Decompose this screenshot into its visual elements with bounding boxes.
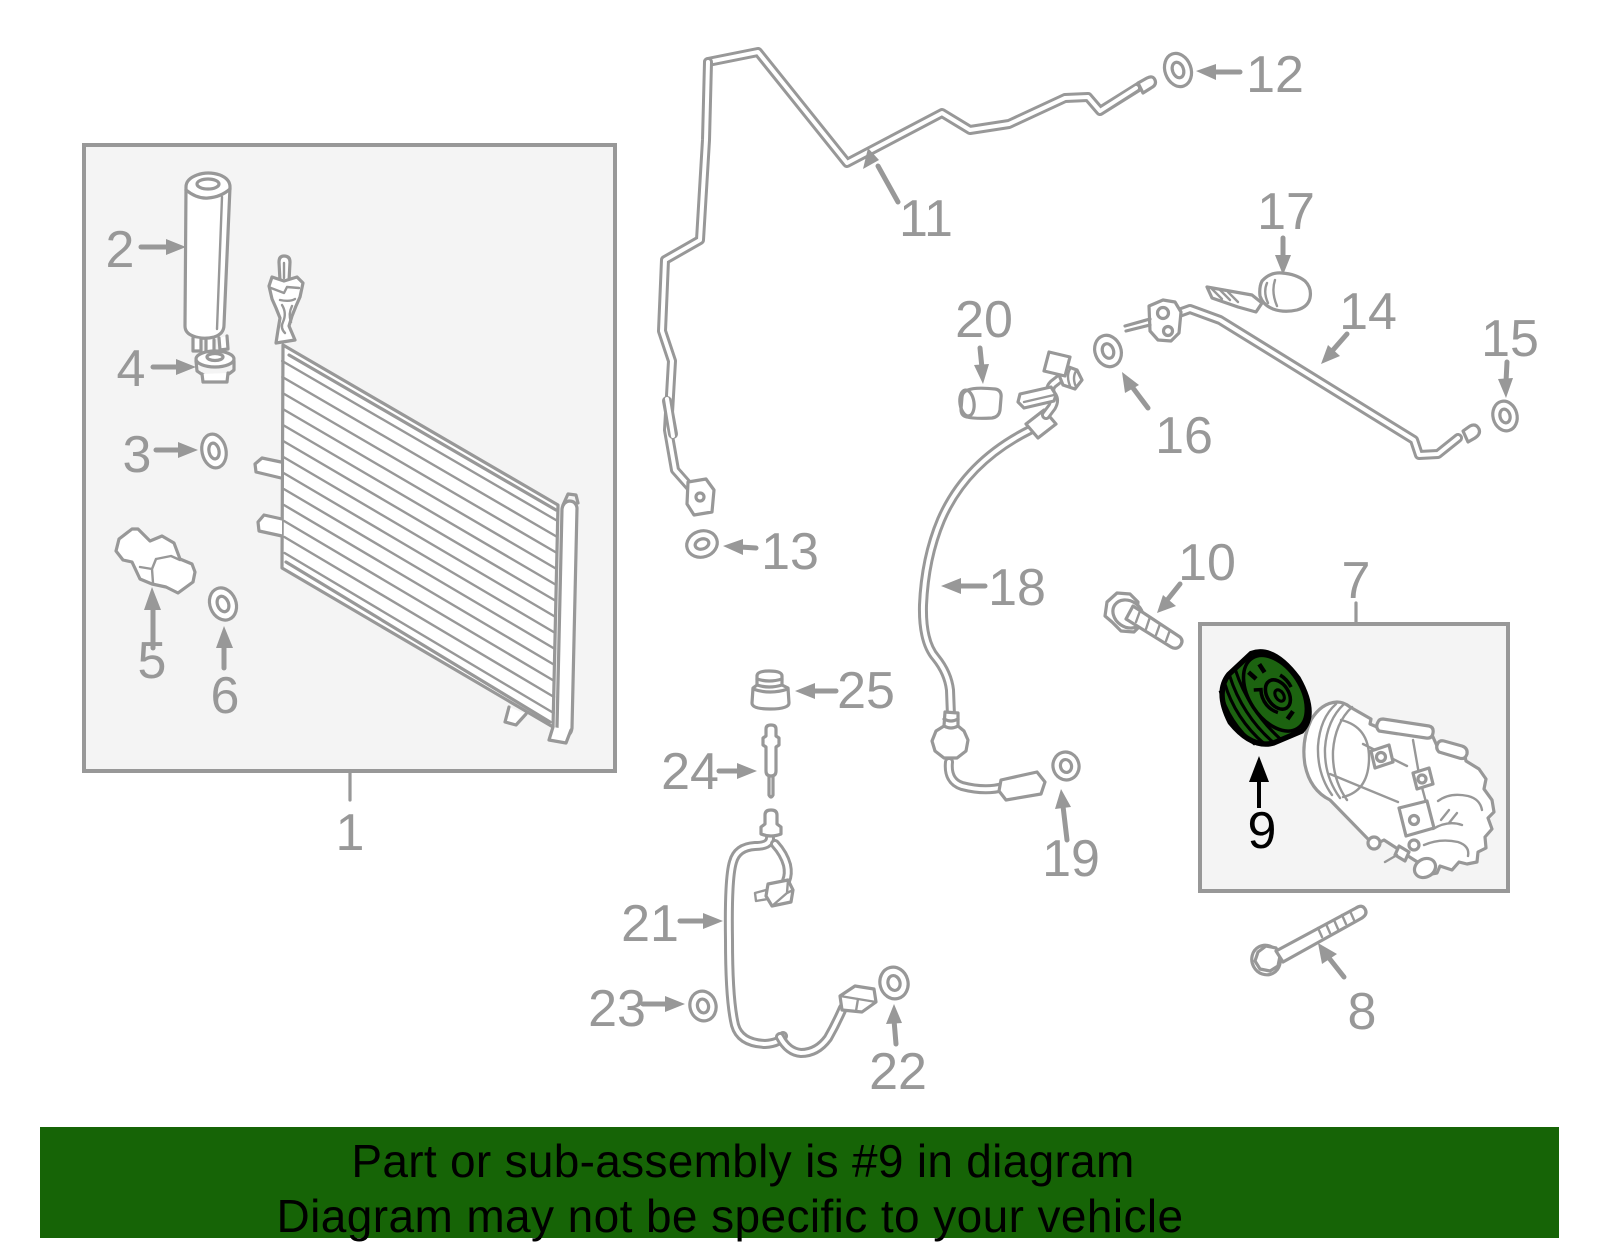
svg-text:10: 10 [1178,534,1236,592]
svg-text:20: 20 [955,291,1013,349]
svg-text:16: 16 [1155,407,1213,465]
svg-text:7: 7 [1342,552,1371,610]
svg-text:Part or sub-assembly is #9 in: Part or sub-assembly is #9 in diagram [351,1135,1134,1187]
svg-text:23: 23 [588,980,646,1038]
svg-text:24: 24 [661,743,719,801]
svg-text:9: 9 [1248,802,1277,860]
svg-text:8: 8 [1348,983,1377,1041]
svg-text:2: 2 [106,221,135,279]
svg-text:11: 11 [899,190,953,248]
svg-text:21: 21 [621,895,679,953]
svg-text:19: 19 [1042,830,1100,888]
svg-text:25: 25 [837,662,895,720]
svg-text:3: 3 [123,426,152,484]
svg-text:1: 1 [336,804,365,862]
svg-text:12: 12 [1246,46,1304,104]
svg-text:13: 13 [761,523,819,581]
svg-text:15: 15 [1481,310,1539,368]
svg-text:22: 22 [869,1043,927,1101]
svg-text:18: 18 [988,559,1046,617]
svg-text:6: 6 [211,667,240,725]
svg-text:17: 17 [1257,183,1315,241]
svg-text:4: 4 [117,340,146,398]
svg-text:Diagram may not be specific to: Diagram may not be specific to your vehi… [277,1190,1184,1242]
